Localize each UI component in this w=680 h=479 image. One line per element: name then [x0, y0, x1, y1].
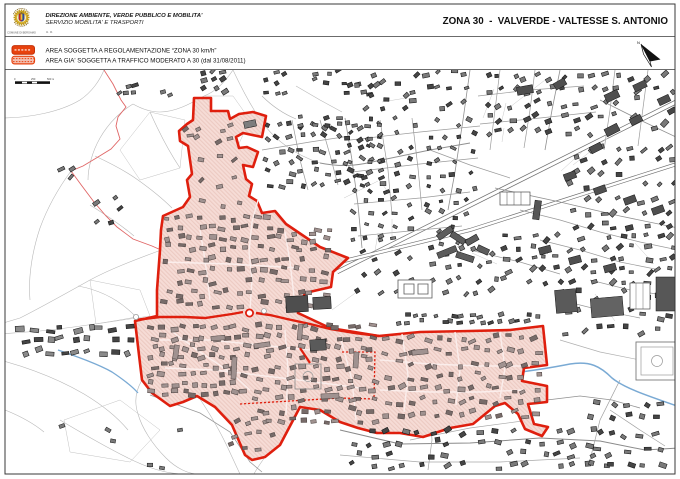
- svg-text:DIREZIONE AMBIENTE, VERDE PUBB: DIREZIONE AMBIENTE, VERDE PUBBLICO E MOB…: [46, 13, 203, 19]
- svg-text:AREA SOGGETTA A REGOLAMENTAZIO: AREA SOGGETTA A REGOLAMENTAZIONE “ZONA 3…: [46, 48, 217, 55]
- svg-text:ZONA 30 - VALVERDE - VALTESS: ZONA 30 - VALVERDE - VALTESSE S. ANTONIO: [443, 16, 669, 27]
- svg-text:COMUNE DI BERGAMO: COMUNE DI BERGAMO: [7, 31, 36, 35]
- svg-text:N: N: [637, 40, 640, 45]
- svg-text:U. O.: U. O.: [46, 30, 53, 34]
- svg-text:500 m: 500 m: [47, 77, 54, 81]
- svg-text:SERVIZIO MOBILITA' E TRASPORTI: SERVIZIO MOBILITA' E TRASPORTI: [46, 20, 144, 26]
- svg-text:AREA GIA' SOGGETTA A TRAFFICO: AREA GIA' SOGGETTA A TRAFFICO MODERATO A…: [46, 58, 246, 65]
- svg-text:250: 250: [31, 77, 36, 81]
